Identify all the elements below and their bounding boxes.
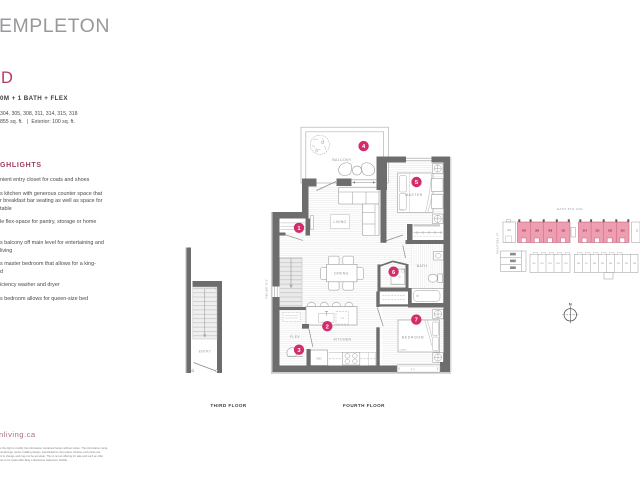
- svg-text:BALCONY: BALCONY: [332, 158, 352, 162]
- svg-text:8'-0": 8'-0": [411, 369, 415, 371]
- svg-text:ENTRY: ENTRY: [199, 349, 212, 353]
- svg-text:315: 315: [595, 230, 600, 233]
- svg-text:7: 7: [415, 318, 418, 324]
- svg-text:FOURTH FLOOR: FOURTH FLOOR: [343, 403, 385, 408]
- svg-text:314: 314: [583, 230, 588, 233]
- svg-text:311: 311: [561, 230, 566, 233]
- svg-text:DINING: DINING: [334, 271, 349, 275]
- svg-text:QUEEN: QUEEN: [400, 350, 407, 352]
- svg-text:THIS UNIT 21'-2": THIS UNIT 21'-2": [265, 279, 269, 299]
- svg-text:N: N: [569, 303, 572, 307]
- svg-text:BEDROOM: BEDROOM: [402, 336, 424, 340]
- svg-text:W/D: W/D: [316, 356, 321, 360]
- svg-text:319: 319: [621, 230, 626, 233]
- svg-text:BATH: BATH: [417, 264, 428, 268]
- svg-text:LIVING: LIVING: [334, 220, 347, 224]
- svg-text:MASTER: MASTER: [405, 193, 423, 197]
- svg-text:305: 305: [535, 230, 540, 233]
- svg-text:2: 2: [326, 324, 329, 330]
- svg-text:318: 318: [608, 230, 613, 233]
- svg-text:KING: KING: [399, 210, 404, 212]
- svg-text:KITCHEN: KITCHEN: [334, 338, 352, 342]
- svg-text:THIRD FLOOR: THIRD FLOOR: [210, 403, 247, 408]
- svg-text:EAST 5TH AVE: EAST 5TH AVE: [557, 207, 583, 211]
- svg-text:308: 308: [548, 230, 553, 233]
- svg-text:304: 304: [522, 230, 527, 233]
- svg-text:MANITOBA ST: MANITOBA ST: [496, 232, 500, 254]
- svg-text:FLEX: FLEX: [290, 335, 300, 339]
